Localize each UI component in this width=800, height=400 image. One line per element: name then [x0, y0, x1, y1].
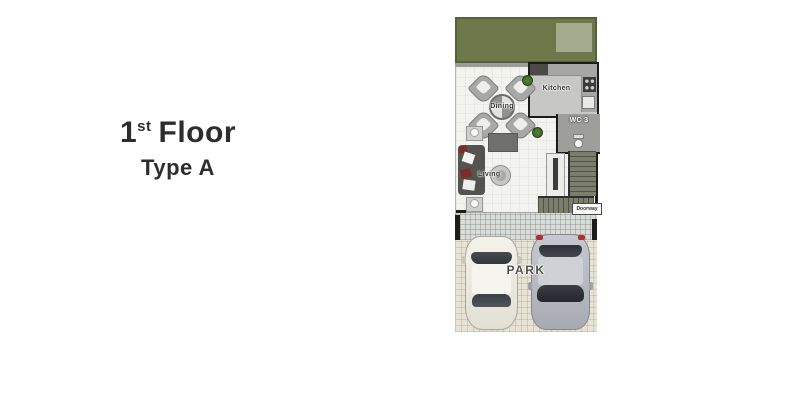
chair-cushion [476, 79, 492, 95]
stair-flight-vertical [568, 151, 596, 196]
kitchen-label: Kitchen [530, 85, 583, 92]
park-label: PARK [454, 263, 598, 277]
kitchen-room: Kitchen [528, 62, 599, 118]
car-mirror [528, 282, 532, 290]
page-canvas: 1stFloor Type A Kitchen WC 3 [0, 0, 800, 400]
doorway-tag: Doorway [572, 203, 602, 215]
pillow-icon [462, 152, 476, 165]
toilet-bowl [574, 139, 583, 148]
dining-label: Dining [472, 103, 532, 110]
floor-ordinal-suffix: st [137, 118, 151, 135]
title-block: 1stFloor Type A [116, 116, 240, 181]
end-table-disc [470, 199, 479, 208]
garden-area [455, 17, 597, 63]
floor-plan: Kitchen WC 3 Dining [454, 17, 598, 332]
floor-number: 1 [120, 116, 137, 149]
tv-cabinet-icon [488, 133, 518, 152]
patio-slab [556, 23, 592, 52]
floor-word: Floor [159, 116, 237, 149]
floor-title: 1stFloor [116, 116, 240, 150]
toilet-icon [573, 134, 584, 149]
closet-door [553, 158, 558, 190]
living-label: Living [478, 171, 500, 178]
plant-icon [522, 75, 533, 86]
car-mirror [589, 282, 593, 290]
silver-car-icon [531, 234, 590, 330]
fridge-icon [530, 64, 548, 75]
stove-icon [583, 77, 596, 92]
car-windshield [537, 285, 584, 302]
wc-label: WC 3 [558, 117, 600, 124]
closet-panel [546, 153, 565, 197]
car-rear-window [539, 245, 582, 257]
living-area: Living [458, 125, 522, 213]
taillight-icon [536, 235, 543, 240]
type-label: Type A [116, 155, 240, 181]
wc-room: WC 3 [556, 114, 600, 154]
end-table-disc [470, 128, 479, 137]
pillow-icon [460, 168, 472, 179]
taillight-icon [578, 235, 585, 240]
sink-icon [582, 96, 595, 109]
car-rear-window [472, 294, 511, 307]
end-table-icon [466, 126, 483, 141]
plant-icon [532, 127, 543, 138]
sofa-icon [458, 145, 485, 195]
interior-area: Kitchen WC 3 Dining [455, 67, 598, 213]
doorway-label: Doorway [576, 207, 597, 212]
white-car-icon [465, 236, 518, 330]
pillow-icon [462, 179, 475, 191]
end-table-icon [466, 197, 483, 212]
